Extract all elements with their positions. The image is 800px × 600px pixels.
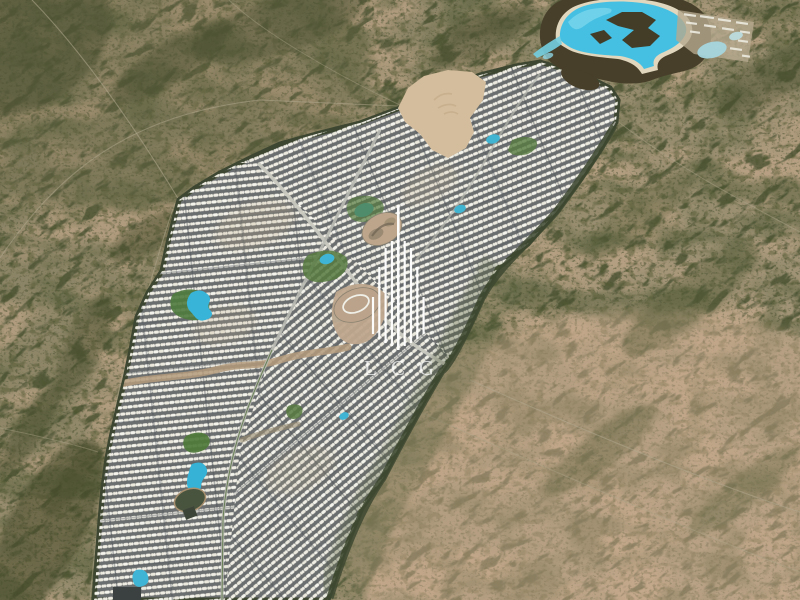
svg-text:LCG: LCG <box>364 356 448 380</box>
